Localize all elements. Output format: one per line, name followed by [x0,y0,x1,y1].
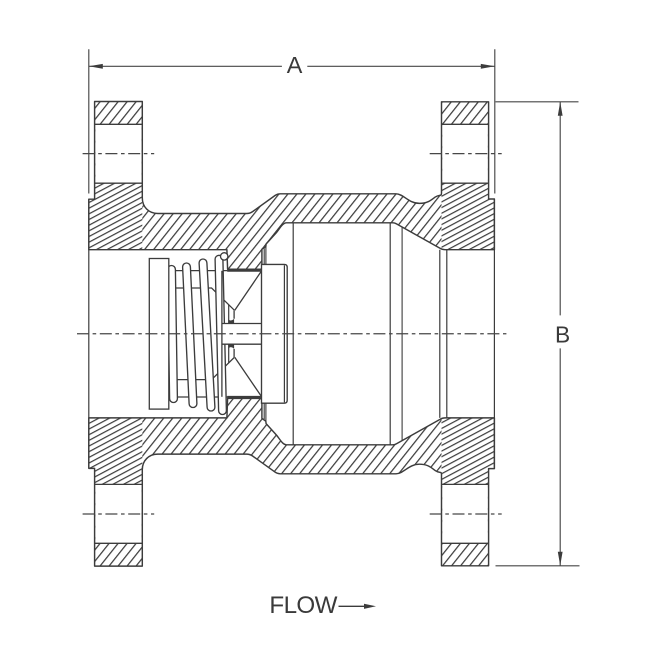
svg-text:B: B [555,322,570,348]
svg-text:FLOW: FLOW [269,592,337,619]
svg-text:A: A [287,52,303,78]
